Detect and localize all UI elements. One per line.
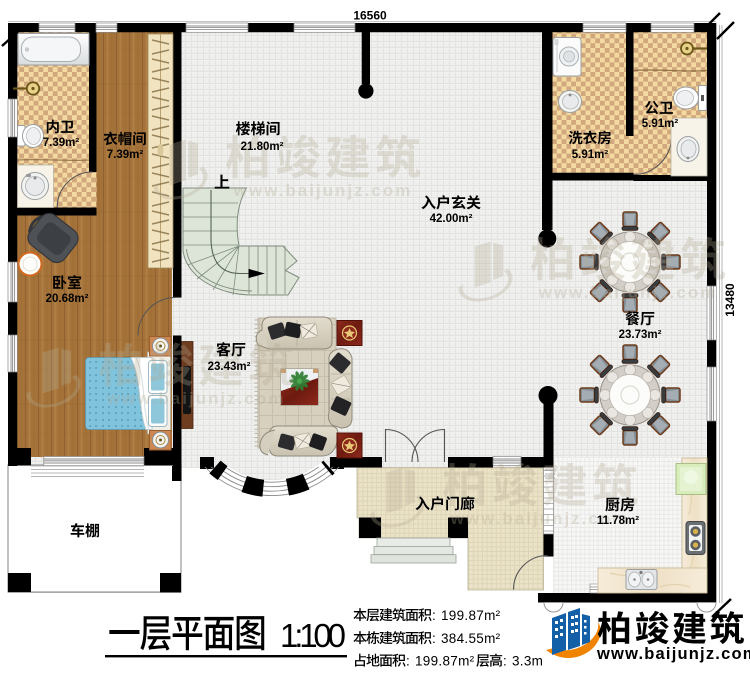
svg-text:7.39m²: 7.39m² — [107, 149, 144, 161]
svg-text:42.00m²: 42.00m² — [430, 213, 473, 225]
svg-text:384.55m²: 384.55m² — [441, 631, 501, 646]
svg-text:7.39m²: 7.39m² — [43, 137, 80, 149]
svg-text:www.baijunjz.com: www.baijunjz.com — [233, 181, 413, 200]
svg-text::: : — [503, 654, 507, 669]
svg-text::: : — [406, 654, 410, 669]
svg-text:1:100: 1:100 — [280, 617, 346, 654]
svg-text:3.3m: 3.3m — [512, 654, 543, 669]
svg-text::: : — [432, 608, 436, 623]
svg-text:5.91m²: 5.91m² — [572, 149, 609, 161]
svg-text:www.baijunjz.com: www.baijunjz.com — [538, 283, 718, 302]
svg-text::: : — [432, 631, 436, 646]
svg-text:www.baijunjz.com: www.baijunjz.com — [596, 645, 750, 663]
svg-text:5.91m²: 5.91m² — [642, 118, 679, 130]
svg-text:16560: 16560 — [353, 9, 387, 23]
svg-text:20.68m²: 20.68m² — [46, 293, 89, 305]
svg-text:11.78m²: 11.78m² — [597, 515, 639, 527]
svg-text:23.43m²: 23.43m² — [208, 361, 251, 373]
svg-text:21.80m²: 21.80m² — [241, 141, 284, 153]
svg-text:13480: 13480 — [723, 283, 737, 317]
svg-text:199.87m²: 199.87m² — [415, 654, 475, 669]
svg-text:www.baijunjz.com: www.baijunjz.com — [106, 389, 286, 408]
svg-text:23.73m²: 23.73m² — [619, 329, 662, 341]
svg-text:199.87m²: 199.87m² — [441, 608, 501, 623]
